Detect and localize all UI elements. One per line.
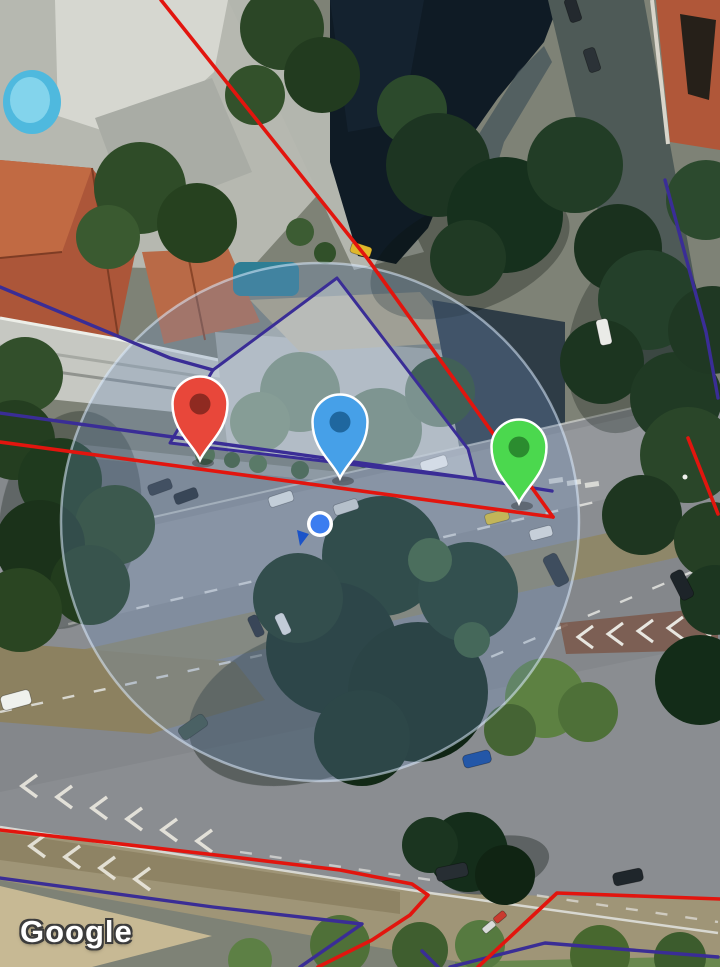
google-logo-watermark[interactable]: Google bbox=[20, 914, 133, 950]
location-dot-icon bbox=[311, 515, 330, 534]
map-canvas[interactable]: Google bbox=[0, 0, 720, 967]
map-image bbox=[0, 0, 720, 967]
